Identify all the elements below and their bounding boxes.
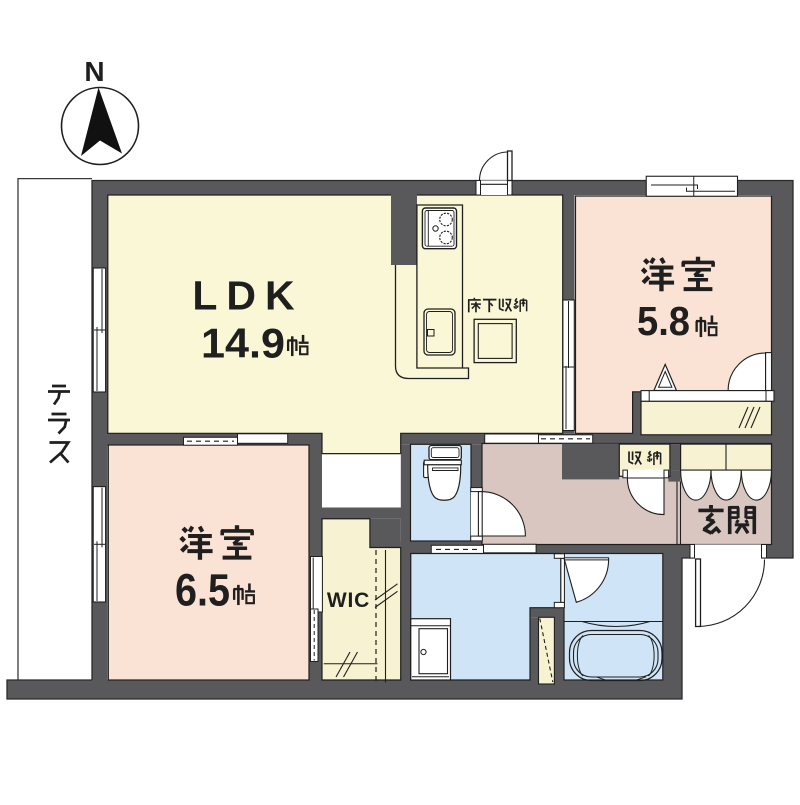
svg-text:LDK: LDK bbox=[192, 273, 303, 319]
svg-text:6.5: 6.5 bbox=[175, 565, 230, 616]
svg-text:N: N bbox=[84, 56, 104, 87]
svg-text:14.9: 14.9 bbox=[201, 320, 285, 367]
svg-text:5.8: 5.8 bbox=[637, 298, 690, 344]
svg-text:WIC: WIC bbox=[327, 589, 370, 612]
